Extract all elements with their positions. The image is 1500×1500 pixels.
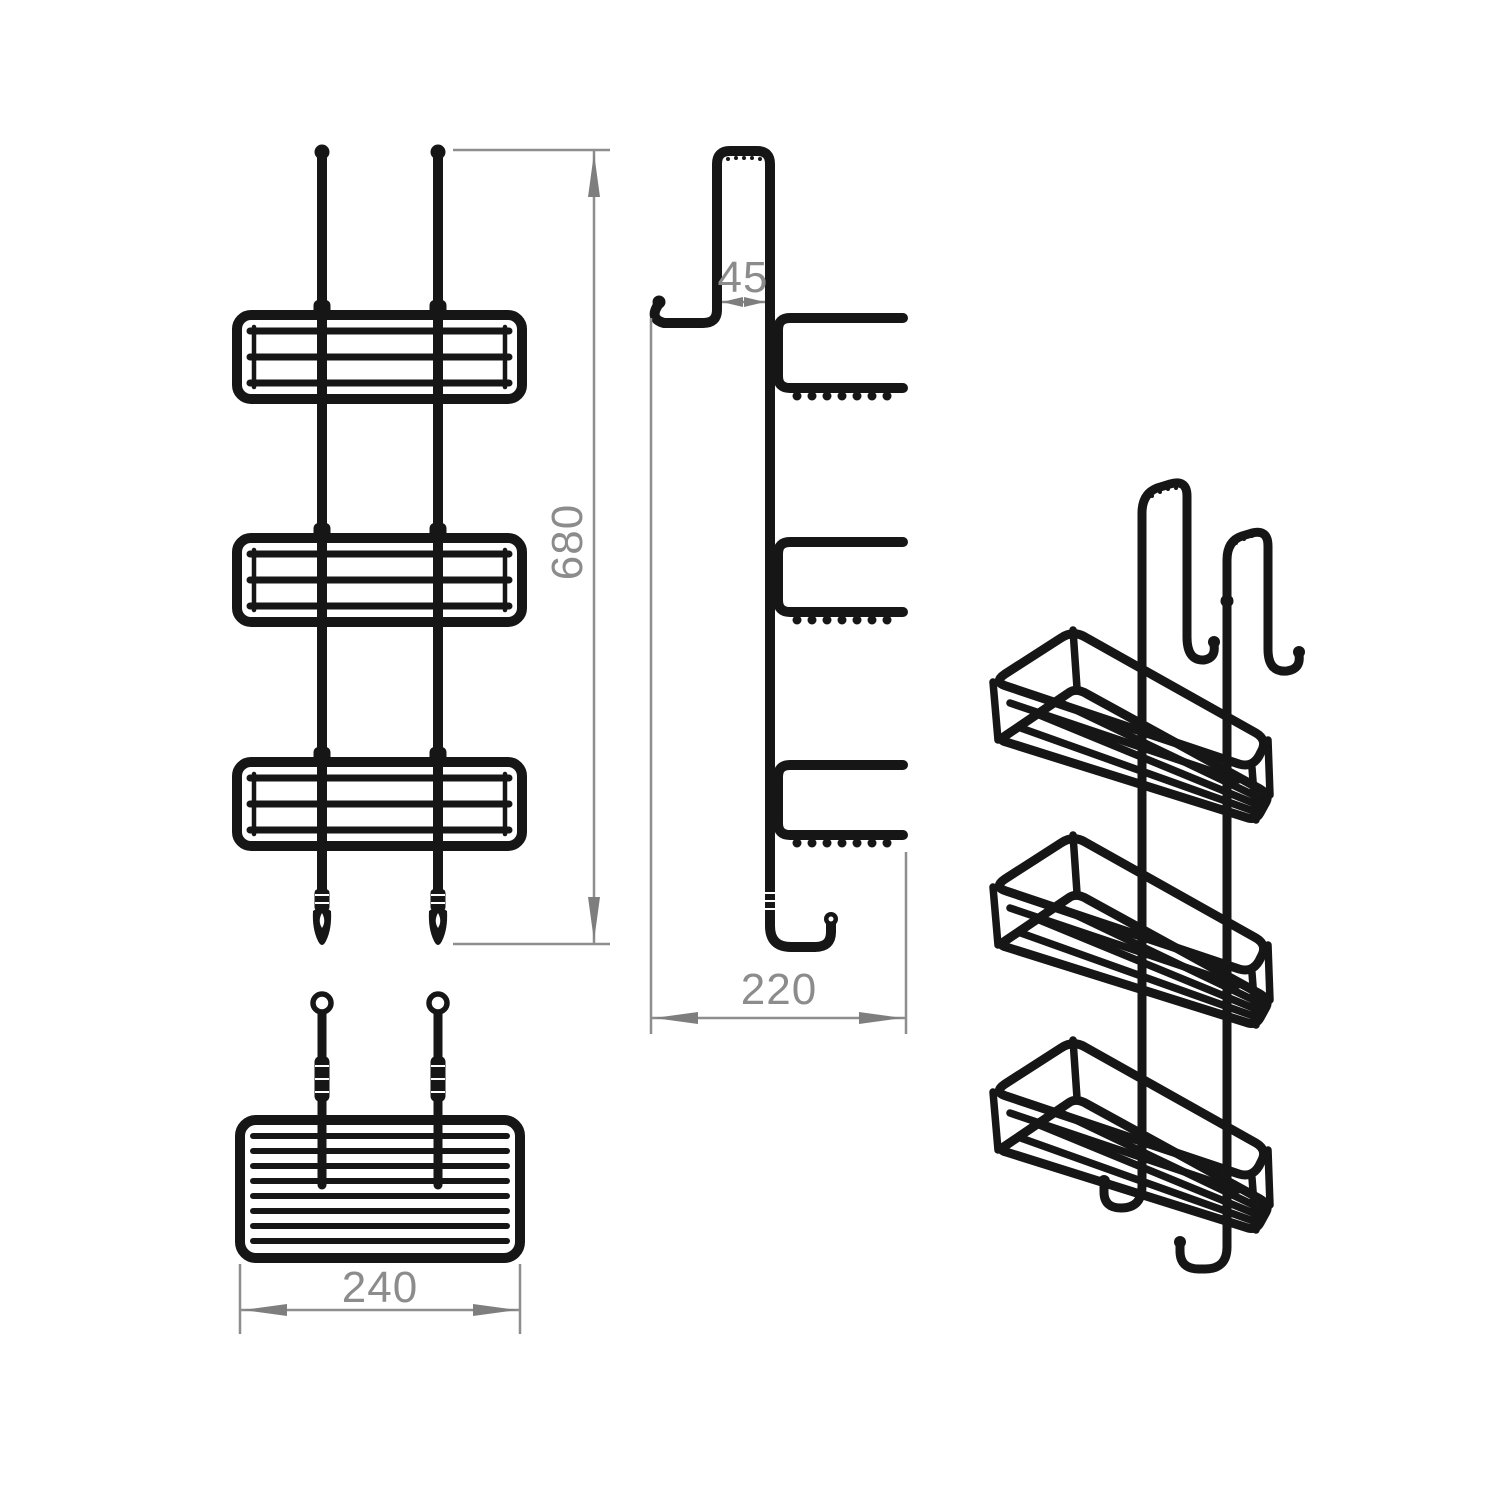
arrowhead-down (588, 897, 600, 941)
side-basket-tier-1 (778, 318, 903, 401)
side-bottom-hook (765, 893, 838, 947)
hook-curl-end (653, 296, 666, 309)
front-view (237, 145, 522, 946)
front-hanging-rails (313, 145, 447, 946)
technical-drawing-sheet: 680 45 220 240 (0, 0, 1500, 1500)
front-basket-tier-3 (237, 762, 522, 846)
side-view (653, 151, 904, 947)
arrowhead-left (654, 1012, 698, 1024)
dim-width-label: 240 (342, 1263, 418, 1312)
dim-height-label: 680 (543, 504, 592, 580)
dim-width: 240 (240, 1263, 520, 1334)
arrowhead-left (243, 1304, 287, 1316)
arrowhead-right (859, 1012, 903, 1024)
top-view-basket (240, 1120, 520, 1258)
arrowhead-right (473, 1304, 517, 1316)
dim-hook-width-label: 45 (718, 253, 769, 302)
dim-depth-label: 220 (741, 965, 817, 1014)
perspective-view (993, 483, 1305, 1269)
dim-height: 680 (453, 150, 610, 944)
drawing-svg: 680 45 220 240 (0, 0, 1500, 1500)
perspective-far-hook-rail (1098, 483, 1220, 1208)
side-basket-tier-3 (778, 765, 903, 848)
wire-end-eyelet (429, 994, 447, 1012)
arrowhead-up (588, 153, 600, 197)
front-basket-tier-2 (237, 538, 522, 622)
front-basket-tier-1 (237, 315, 522, 399)
dim-depth: 220 (651, 318, 906, 1034)
side-basket-tier-2 (778, 542, 903, 625)
dim-hook-width: 45 (718, 253, 769, 307)
wire-end-eyelet (313, 994, 331, 1012)
top-view (240, 994, 520, 1258)
